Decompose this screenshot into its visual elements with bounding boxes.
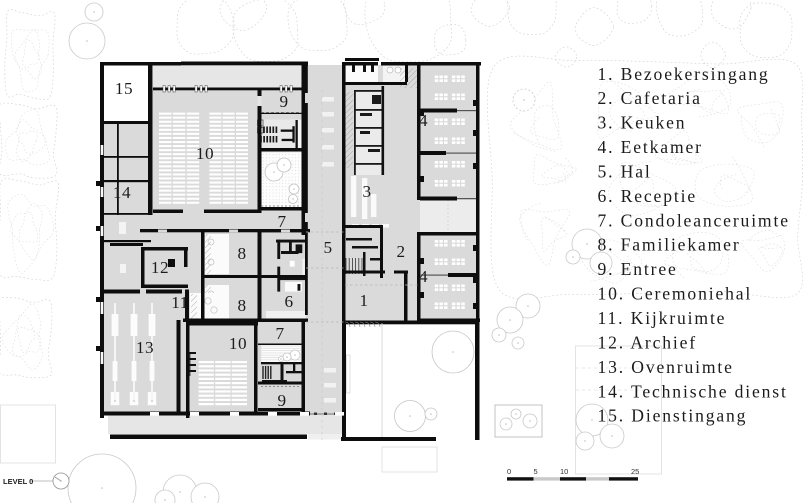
svg-text:10: 10 [196, 144, 214, 163]
svg-text:LEVEL 0: LEVEL 0 [3, 477, 33, 486]
svg-text:12: 12 [151, 258, 169, 277]
svg-text:8: 8 [237, 244, 246, 263]
svg-text:8: 8 [237, 296, 246, 315]
svg-text:1. Bezoekersingang: 1. Bezoekersingang [598, 64, 770, 84]
svg-text:4: 4 [419, 111, 428, 130]
svg-text:11: 11 [171, 293, 189, 312]
svg-text:5: 5 [534, 467, 538, 476]
svg-text:10: 10 [560, 467, 568, 476]
svg-text:9: 9 [277, 391, 286, 410]
svg-text:10. Ceremoniehal: 10. Ceremoniehal [598, 284, 753, 304]
svg-text:9: 9 [279, 92, 288, 111]
svg-text:13: 13 [136, 338, 154, 357]
svg-text:4: 4 [419, 267, 428, 286]
svg-text:3: 3 [362, 182, 371, 201]
svg-text:25: 25 [631, 467, 639, 476]
svg-text:8. Familiekamer: 8. Familiekamer [598, 235, 741, 255]
svg-text:6: 6 [284, 292, 293, 311]
svg-text:2: 2 [396, 242, 405, 261]
svg-text:13. Ovenruimte: 13. Ovenruimte [598, 357, 734, 377]
svg-text:7: 7 [275, 324, 284, 343]
svg-text:5. Hal: 5. Hal [598, 162, 652, 182]
svg-text:4. Eetkamer: 4. Eetkamer [598, 137, 703, 157]
svg-text:7. Condoleanceruimte: 7. Condoleanceruimte [598, 210, 790, 230]
svg-text:10: 10 [229, 334, 247, 353]
svg-text:7: 7 [277, 212, 286, 231]
svg-text:1: 1 [359, 291, 368, 310]
svg-text:5: 5 [323, 238, 332, 257]
svg-text:6. Receptie: 6. Receptie [598, 186, 698, 206]
svg-text:14: 14 [113, 183, 131, 202]
svg-text:3. Keuken: 3. Keuken [598, 113, 687, 133]
svg-text:2. Cafetaria: 2. Cafetaria [598, 88, 702, 108]
svg-text:11. Kijkruimte: 11. Kijkruimte [598, 308, 727, 328]
svg-text:9. Entree: 9. Entree [598, 259, 678, 279]
svg-text:15. Dienstingang: 15. Dienstingang [598, 406, 748, 426]
svg-text:0: 0 [507, 467, 511, 476]
svg-text:14. Technische dienst: 14. Technische dienst [598, 381, 788, 401]
svg-text:12. Archief: 12. Archief [598, 332, 698, 352]
svg-text:15: 15 [115, 79, 133, 98]
